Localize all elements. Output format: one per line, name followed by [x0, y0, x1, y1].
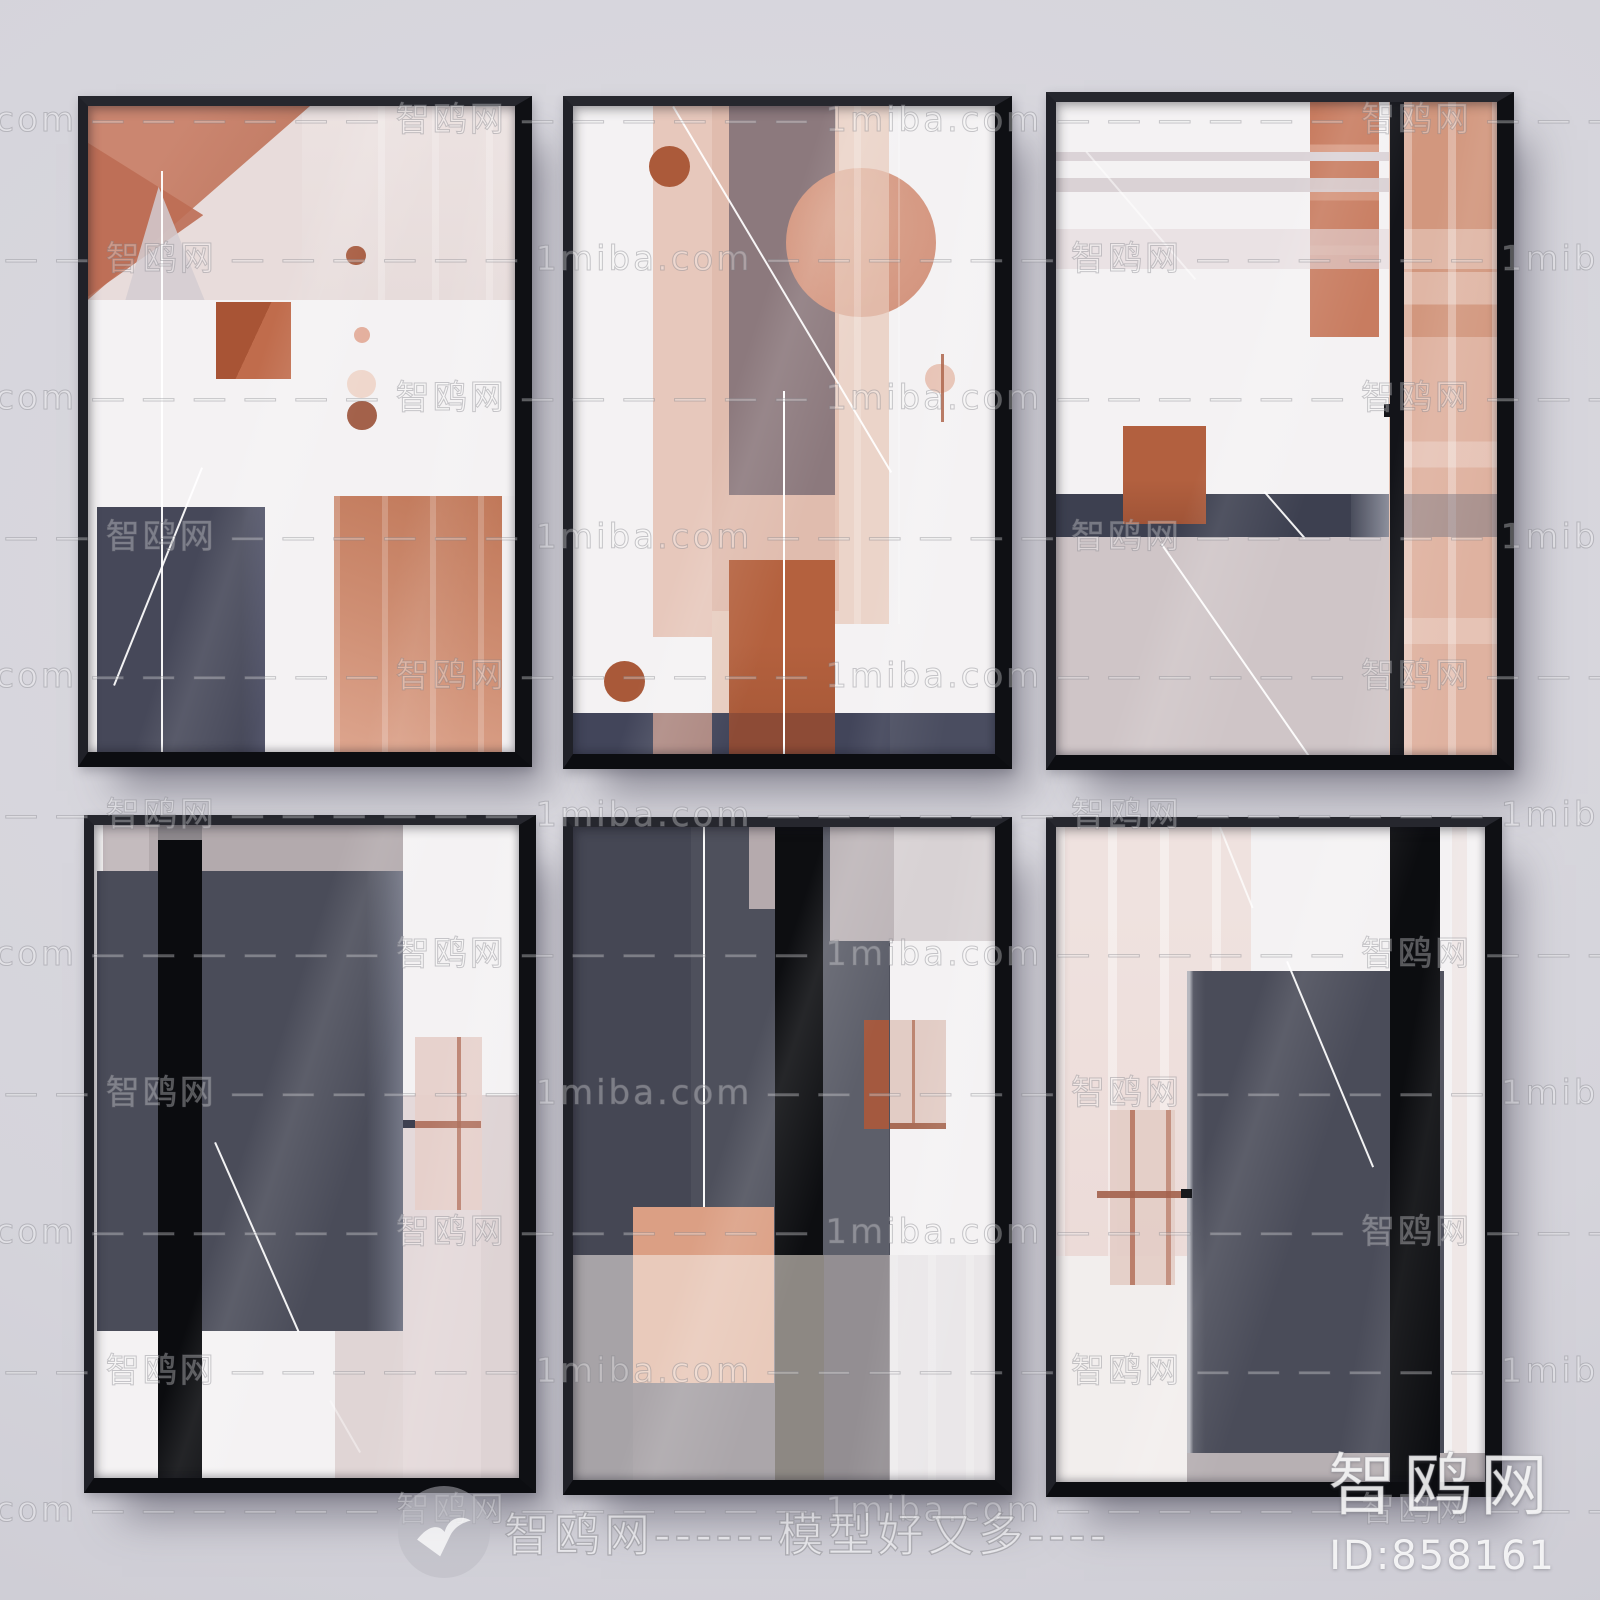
shape-rect: [97, 507, 266, 752]
shape-rect: [103, 825, 150, 871]
shape-rect: [824, 1255, 889, 1480]
shape-circle: [925, 364, 955, 394]
artwork-4-canvas: [94, 825, 519, 1478]
shape-hline: [1097, 1191, 1191, 1199]
shape-vline: [941, 354, 944, 422]
shape-plaid-panel: [1404, 102, 1497, 755]
framed-artwork-6: [1046, 817, 1502, 1497]
shape-rect: [890, 713, 996, 754]
shape-black-bar: [1390, 102, 1405, 755]
shape-hline: [1056, 178, 1389, 192]
framed-artwork-4: [84, 815, 536, 1493]
framed-artwork-1: [78, 96, 532, 767]
artwork-3-canvas: [1056, 102, 1497, 755]
shape-rect: [749, 827, 776, 909]
shape-vline: [703, 827, 705, 1207]
shape-circle: [604, 661, 645, 702]
shape-rect: [894, 827, 995, 941]
shape-hband: [1404, 229, 1497, 268]
shape-rect: [1056, 1256, 1187, 1482]
shape-vline: [161, 171, 163, 752]
shape-notch: [403, 1120, 416, 1128]
framed-artwork-2: [563, 96, 1012, 769]
shape-rect: [712, 611, 729, 712]
shape-reflection-stripes: [854, 106, 900, 624]
shape-black-bar: [1390, 827, 1439, 1482]
artwork-5-canvas: [573, 827, 995, 1480]
shape-striped-block: [1310, 102, 1378, 337]
shape-rect: [1452, 827, 1467, 1482]
shape-rect: [335, 1331, 403, 1478]
shape-vline: [783, 391, 785, 754]
shape-vline: [912, 1020, 915, 1129]
shape-rect: [1351, 494, 1388, 537]
watermark-banner-text: 智鸥网------模型好又多----: [504, 1499, 1110, 1565]
shape-rect: [864, 1020, 889, 1129]
shape-rect: [633, 1255, 774, 1382]
shape-notch: [1181, 1189, 1192, 1199]
shape-hline: [1056, 152, 1389, 161]
shape-black-bar: [158, 840, 202, 1478]
shape-reflection-stripes: [890, 1255, 996, 1480]
shape-rect: [653, 713, 712, 754]
artwork-6-canvas: [1056, 827, 1485, 1482]
artwork-2-canvas: [573, 106, 995, 754]
seagull-logo-icon: [398, 1486, 490, 1578]
wall: 1miba.com — — — — — — 智鸥网 — — — — — — 1m…: [0, 0, 1600, 1600]
shape-reflection-stripes: [378, 106, 502, 300]
shape-rect: [1404, 494, 1497, 537]
shape-circle: [346, 246, 366, 266]
watermark-id-text: ID:858161: [1328, 1533, 1556, 1579]
shape-circle: [649, 146, 690, 187]
shape-circle: [354, 327, 370, 343]
shape-window-pane: [890, 1020, 946, 1129]
framed-artwork-3: [1046, 92, 1514, 770]
shape-rect: [1056, 494, 1389, 537]
shape-notch: [1384, 404, 1391, 417]
shape-square: [216, 302, 291, 378]
shape-circle: [347, 401, 376, 430]
shape-black-bar: [775, 827, 824, 1255]
shape-hband: [1056, 229, 1389, 268]
framed-artwork-5: [563, 817, 1012, 1495]
shape-rect: [573, 827, 691, 1255]
shape-rect: [1187, 1453, 1485, 1482]
shape-rect: [97, 871, 403, 1331]
shape-rect: [334, 496, 502, 752]
shape-circle: [347, 370, 376, 399]
shape-square: [1123, 426, 1206, 524]
shape-rect: [633, 1207, 774, 1255]
shape-rect: [775, 1255, 824, 1480]
shape-rect: [502, 496, 515, 752]
shape-rect: [1056, 537, 1389, 755]
artwork-1-canvas: [88, 106, 515, 752]
watermark-banner: 智鸥网------模型好又多----: [398, 1486, 1110, 1578]
shape-rect: [573, 1255, 633, 1480]
shape-rect: [88, 300, 515, 510]
shape-rect: [481, 1095, 519, 1478]
shape-hline: [890, 1123, 946, 1129]
